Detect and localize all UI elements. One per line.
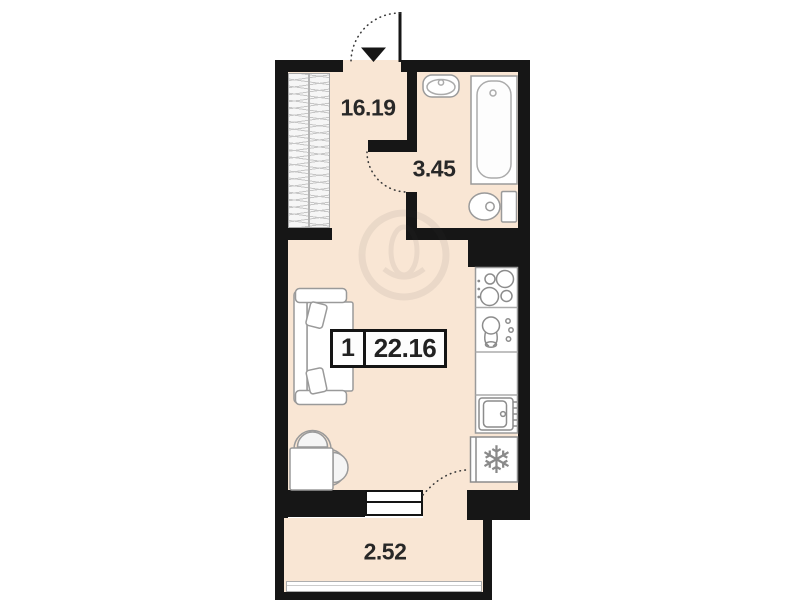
unit-badge: 1 22.16 [330,329,447,368]
wall-kitchen-block [468,240,530,267]
balcony-window-icon [365,490,423,516]
wall-right [518,60,530,490]
bathroom-area-label: 3.45 [413,156,456,183]
wall-bottom-right-block [467,490,530,520]
entrance-opening-floor [343,60,401,72]
wall-hall-stub [288,228,332,240]
wall-balcony-right [483,518,492,600]
wall-balcony-bottom [275,592,492,600]
wardrobe-divider [308,74,310,227]
unit-rooms-count: 1 [333,332,366,365]
living-room-area-label: 16.19 [340,95,395,122]
wall-bottom-left [275,490,365,517]
balcony-door-opening-floor [423,490,467,518]
wall-bathroom-bottom [406,228,530,240]
floorplan: ❄ 16.19 3.45 2.52 1 22.16 [0,0,803,600]
unit-total-area: 22.16 [366,332,444,365]
entrance-door-swing-arc-icon [351,13,400,62]
wall-balcony-left [275,518,284,600]
balcony-glazing [286,581,482,592]
balcony-window-divider [367,501,421,503]
wall-bathroom-upper [407,72,417,140]
balcony-glazing-line [287,585,481,586]
wall-top-right [401,60,530,72]
wall-bathroom-jog [368,140,417,152]
wall-left [275,60,288,518]
balcony-area-label: 2.52 [364,539,407,566]
entrance-door-leaf [399,12,402,62]
